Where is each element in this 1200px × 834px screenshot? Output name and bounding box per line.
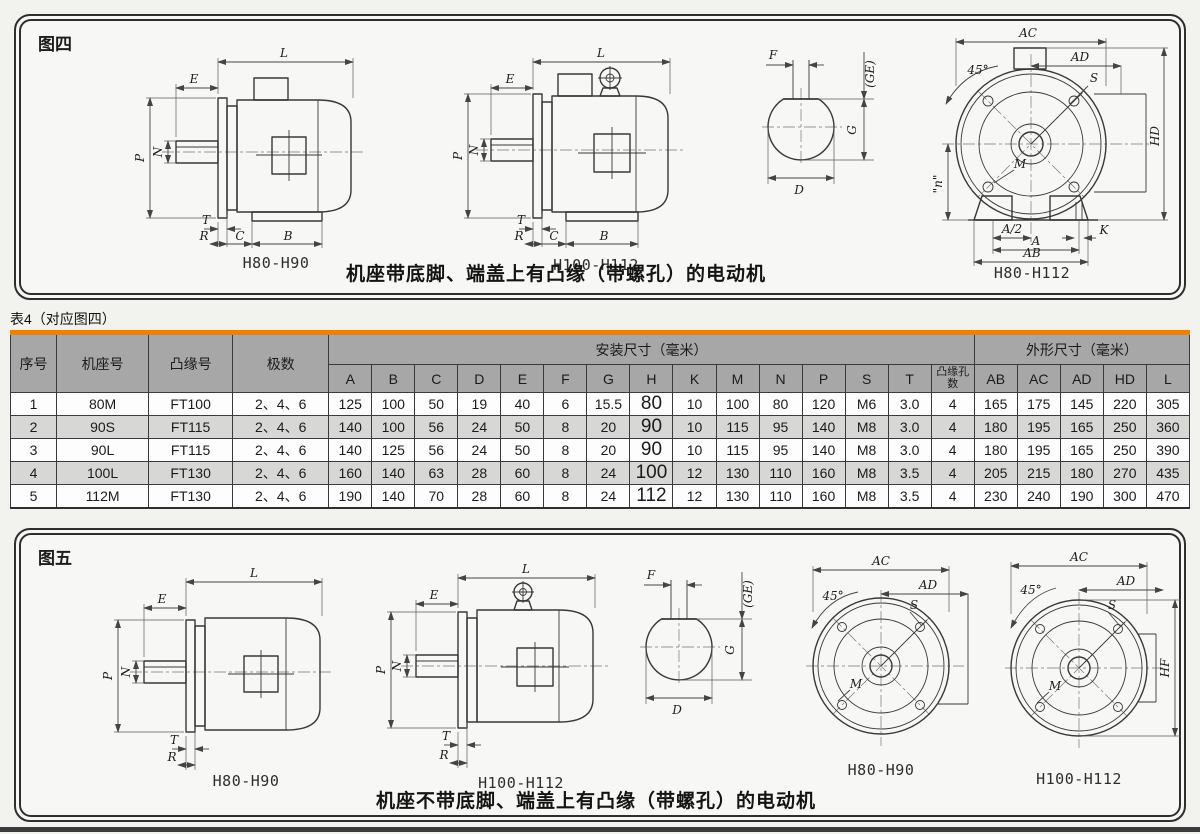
table-cell: 80M	[57, 393, 149, 416]
table-cell: 100	[630, 462, 673, 485]
column-header: H	[630, 365, 673, 393]
dim-T: T	[517, 213, 526, 227]
dim-45: 45°	[1019, 583, 1041, 597]
dim-n: "n"	[931, 175, 945, 194]
dim-D: D	[793, 183, 804, 197]
table-cell: 10	[673, 439, 716, 462]
table-cell: 2、4、6	[233, 439, 329, 462]
table-cell: 2、4、6	[233, 416, 329, 439]
dim-GE: (GE)	[863, 60, 877, 88]
dim-AD: AD	[1116, 574, 1136, 588]
figure4-panel: 图四 L E P N T R C B H80	[14, 14, 1186, 300]
table-cell: 4	[931, 439, 974, 462]
table-cell: 8	[544, 462, 587, 485]
dim-AC: AC	[871, 554, 890, 568]
dim-C: C	[549, 229, 558, 243]
table-cell: 130	[716, 485, 759, 509]
table-cell: 8	[544, 485, 587, 509]
table-cell: 20	[587, 416, 630, 439]
fig4-side-view-h80-h90: L E P N T R C B H80-H90	[126, 40, 376, 272]
table-cell: 56	[415, 439, 458, 462]
column-header: AD	[1060, 365, 1103, 393]
table-cell: 100	[716, 393, 759, 416]
column-header: F	[544, 365, 587, 393]
table-row: 180MFT1002、4、6125100501940615.5801010080…	[11, 393, 1190, 416]
table-cell: 12	[673, 485, 716, 509]
dim-B: B	[283, 229, 293, 243]
dim-HF: HF	[1158, 658, 1172, 678]
dim-L: L	[596, 46, 605, 60]
table-cell: 50	[415, 393, 458, 416]
table-cell: 90	[630, 439, 673, 462]
table-cell: 140	[802, 439, 845, 462]
table-cell: FT115	[149, 439, 233, 462]
dim-HD: HD	[1148, 126, 1162, 147]
table-cell: 110	[759, 462, 802, 485]
table-cell: 28	[458, 485, 501, 509]
table-cell: 3.5	[888, 462, 931, 485]
table-cell: FT100	[149, 393, 233, 416]
dim-AB: AB	[1022, 246, 1041, 260]
table-cell: 24	[458, 439, 501, 462]
group-header-outline: 外形尺寸（毫米）	[974, 333, 1189, 365]
dim-P: P	[374, 665, 388, 675]
table-cell: 3.0	[888, 439, 931, 462]
table-cell: 305	[1146, 393, 1189, 416]
table-cell: 300	[1103, 485, 1146, 509]
table-cell: 100	[372, 416, 415, 439]
table-cell: 40	[501, 393, 544, 416]
dim-M: M	[849, 677, 863, 691]
figure5-caption: 机座不带底脚、端盖上有凸缘（带螺孔）的电动机	[96, 786, 1096, 813]
table-cell: 3.0	[888, 416, 931, 439]
figure4-caption: 机座带底脚、端盖上有凸缘（带螺孔）的电动机	[56, 259, 1056, 286]
table-cell: FT115	[149, 416, 233, 439]
table-cell: M8	[845, 439, 888, 462]
dim-T: T	[442, 729, 451, 743]
dim-R: R	[198, 229, 208, 243]
dim-K: K	[1099, 223, 1110, 237]
fig5-side-view-h100-h112: L E P N T R H100-H112	[371, 556, 621, 792]
dim-E: E	[429, 588, 439, 602]
column-header: 序号	[11, 333, 57, 393]
table-cell: 2、4、6	[233, 393, 329, 416]
column-header: B	[372, 365, 415, 393]
table-cell: 180	[974, 416, 1017, 439]
fig5-front-view-h100-h112: AC 45° AD S M HF H100-H112	[991, 550, 1191, 790]
table-cell: 470	[1146, 485, 1189, 509]
dim-T: T	[202, 213, 211, 227]
table-cell: 165	[1060, 416, 1103, 439]
table-cell: FT130	[149, 462, 233, 485]
column-header: AB	[974, 365, 1017, 393]
table-cell: 95	[759, 416, 802, 439]
table-cell: 250	[1103, 439, 1146, 462]
table-cell: 240	[1017, 485, 1060, 509]
column-header: E	[501, 365, 544, 393]
table-cell: 2	[11, 416, 57, 439]
table-cell: 6	[544, 393, 587, 416]
table-row: 390LFT1152、4、614012556245082090101159514…	[11, 439, 1190, 462]
table-cell: 10	[673, 416, 716, 439]
table-cell: 100L	[57, 462, 149, 485]
dim-AC: AC	[1018, 26, 1037, 40]
table-cell: 50	[501, 416, 544, 439]
table-cell: 24	[587, 485, 630, 509]
column-header: G	[587, 365, 630, 393]
table-cell: 95	[759, 439, 802, 462]
table-cell: 160	[802, 462, 845, 485]
fig5-shaft-detail: F (GE) G D	[624, 552, 779, 724]
dim-S: S	[910, 598, 918, 612]
table-cell: 8	[544, 416, 587, 439]
table-cell: 115	[716, 416, 759, 439]
table-cell: 435	[1146, 462, 1189, 485]
table-cell: 60	[501, 485, 544, 509]
group-header-install: 安装尺寸（毫米）	[329, 333, 975, 365]
table-cell: 165	[974, 393, 1017, 416]
dimension-table: 序号 机座号 凸缘号 极数 安装尺寸（毫米） 外形尺寸（毫米） ABCDEFGH…	[10, 330, 1190, 509]
dim-45: 45°	[966, 63, 988, 77]
table-cell: 195	[1017, 416, 1060, 439]
dim-L: L	[279, 46, 288, 60]
dim-N: N	[467, 144, 481, 156]
column-header: L	[1146, 365, 1189, 393]
table-body: 180MFT1002、4、6125100501940615.5801010080…	[11, 393, 1190, 509]
column-header: N	[759, 365, 802, 393]
dim-45: 45°	[821, 589, 843, 603]
table-cell: 70	[415, 485, 458, 509]
table-cell: 115	[716, 439, 759, 462]
table-cell: M8	[845, 485, 888, 509]
table-cell: 180	[974, 439, 1017, 462]
table-cell: 5	[11, 485, 57, 509]
dim-G: G	[723, 645, 737, 655]
table-cell: 2、4、6	[233, 462, 329, 485]
table-cell: 250	[1103, 416, 1146, 439]
table-cell: 270	[1103, 462, 1146, 485]
table-row: 290SFT1152、4、614010056245082090101159514…	[11, 416, 1190, 439]
dim-B: B	[599, 229, 609, 243]
table-cell: 175	[1017, 393, 1060, 416]
table-cell: 80	[759, 393, 802, 416]
table-cell: 120	[802, 393, 845, 416]
dim-F: F	[646, 568, 656, 582]
table-cell: 3.0	[888, 393, 931, 416]
table-cell: 3	[11, 439, 57, 462]
table-cell: 140	[372, 485, 415, 509]
column-header: K	[673, 365, 716, 393]
dim-F: F	[768, 48, 778, 62]
column-header: HD	[1103, 365, 1146, 393]
table-cell: 63	[415, 462, 458, 485]
table-cell: 90S	[57, 416, 149, 439]
dim-L: L	[249, 566, 258, 580]
table-cell: 28	[458, 462, 501, 485]
figure4-label: 图四	[38, 30, 72, 55]
dim-R: R	[513, 229, 523, 243]
table-cell: M8	[845, 416, 888, 439]
page-bottom-rule	[0, 827, 1200, 832]
table-cell: 125	[329, 393, 372, 416]
table-cell: 4	[11, 462, 57, 485]
dim-L: L	[521, 562, 530, 576]
table-cell: 190	[1060, 485, 1103, 509]
table-cell: 24	[458, 416, 501, 439]
column-header: S	[845, 365, 888, 393]
table-cell: 215	[1017, 462, 1060, 485]
dim-E: E	[505, 72, 515, 86]
table-cell: 112	[630, 485, 673, 509]
dim-N: N	[119, 666, 133, 678]
table-cell: 180	[1060, 462, 1103, 485]
table-header-row: 序号 机座号 凸缘号 极数 安装尺寸（毫米） 外形尺寸（毫米）	[11, 333, 1190, 365]
table-cell: 50	[501, 439, 544, 462]
column-header: 极数	[233, 333, 329, 393]
table-cell: 112M	[57, 485, 149, 509]
column-header: C	[415, 365, 458, 393]
fig5-front-view-h80-h90: AC 45° AD S M H80-H90	[786, 554, 991, 779]
figure5-panel: 图五 L E P N T R H80-H90	[14, 528, 1186, 822]
dim-P: P	[101, 671, 115, 681]
fig4-side-view-h100-h112: L E P N T R C B H100-H112	[446, 38, 696, 274]
dim-S: S	[1090, 71, 1098, 85]
dim-N: N	[151, 146, 165, 158]
dim-P: P	[133, 153, 147, 163]
table-cell: FT130	[149, 485, 233, 509]
table-cell: 90	[630, 416, 673, 439]
table-cell: M8	[845, 462, 888, 485]
table-cell: 80	[630, 393, 673, 416]
table-cell: 4	[931, 485, 974, 509]
table-cell: 3.5	[888, 485, 931, 509]
column-header: A	[329, 365, 372, 393]
table-cell: M6	[845, 393, 888, 416]
table-cell: 230	[974, 485, 1017, 509]
column-header: 凸缘号	[149, 333, 233, 393]
column-header: P	[802, 365, 845, 393]
table-cell: 360	[1146, 416, 1189, 439]
table-cell: 2、4、6	[233, 485, 329, 509]
table-cell: 60	[501, 462, 544, 485]
dim-R: R	[438, 748, 448, 762]
dim-M: M	[1048, 679, 1062, 693]
table-cell: 19	[458, 393, 501, 416]
table-row: 5112MFT1302、4、61901407028608241121213011…	[11, 485, 1190, 509]
table-cell: 1	[11, 393, 57, 416]
dim-P: P	[451, 151, 465, 161]
dim-M: M	[1013, 157, 1027, 171]
table-cell: 205	[974, 462, 1017, 485]
table-cell: 140	[372, 462, 415, 485]
table-row: 4100LFT1302、4、61601406328608241001213011…	[11, 462, 1190, 485]
table-cell: 160	[802, 485, 845, 509]
fig5-side-view-h80-h90: L E P N T R H80-H90	[96, 562, 346, 790]
dim-GE: (GE)	[741, 580, 755, 608]
table-cell: 195	[1017, 439, 1060, 462]
dim-AD: AD	[918, 578, 938, 592]
dim-E: E	[157, 592, 167, 606]
table-cell: 145	[1060, 393, 1103, 416]
table-cell: 24	[587, 462, 630, 485]
table-cell: 220	[1103, 393, 1146, 416]
dim-R: R	[166, 750, 176, 764]
dim-A2: A/2	[1001, 222, 1022, 236]
table-cell: 15.5	[587, 393, 630, 416]
table-cell: 165	[1060, 439, 1103, 462]
fig4-shaft-detail: F (GE) G D	[746, 32, 901, 204]
table-cell: 140	[329, 416, 372, 439]
fig4-front-view-h80-h112: AC AD 45° S M HD "n" A/2 K A AB H80-H112	[916, 24, 1186, 282]
column-header: 机座号	[57, 333, 149, 393]
table-title: 表4（对应图四）	[10, 309, 116, 329]
column-header: T	[888, 365, 931, 393]
dim-T: T	[170, 733, 179, 747]
table-cell: 90L	[57, 439, 149, 462]
dim-AC: AC	[1069, 550, 1088, 564]
table-cell: 56	[415, 416, 458, 439]
dim-E: E	[189, 72, 199, 86]
table-cell: 4	[931, 462, 974, 485]
table-cell: 12	[673, 462, 716, 485]
table-cell: 4	[931, 393, 974, 416]
figure5-label: 图五	[38, 544, 72, 569]
drawing-label: H80-H90	[848, 761, 915, 779]
table-cell: 110	[759, 485, 802, 509]
column-header: 凸缘孔数	[931, 365, 974, 393]
column-header: D	[458, 365, 501, 393]
dim-AD: AD	[1070, 50, 1090, 64]
table-cell: 125	[372, 439, 415, 462]
table-cell: 100	[372, 393, 415, 416]
table-cell: 10	[673, 393, 716, 416]
table-cell: 4	[931, 416, 974, 439]
dim-G: G	[845, 125, 859, 135]
column-header: M	[716, 365, 759, 393]
table-cell: 160	[329, 462, 372, 485]
table-cell: 20	[587, 439, 630, 462]
table-cell: 140	[329, 439, 372, 462]
table-cell: 390	[1146, 439, 1189, 462]
table-cell: 130	[716, 462, 759, 485]
dim-C: C	[235, 229, 244, 243]
table-cell: 190	[329, 485, 372, 509]
column-header: AC	[1017, 365, 1060, 393]
dim-N: N	[390, 660, 404, 672]
dim-D: D	[671, 703, 682, 717]
table-cell: 140	[802, 416, 845, 439]
table-cell: 8	[544, 439, 587, 462]
